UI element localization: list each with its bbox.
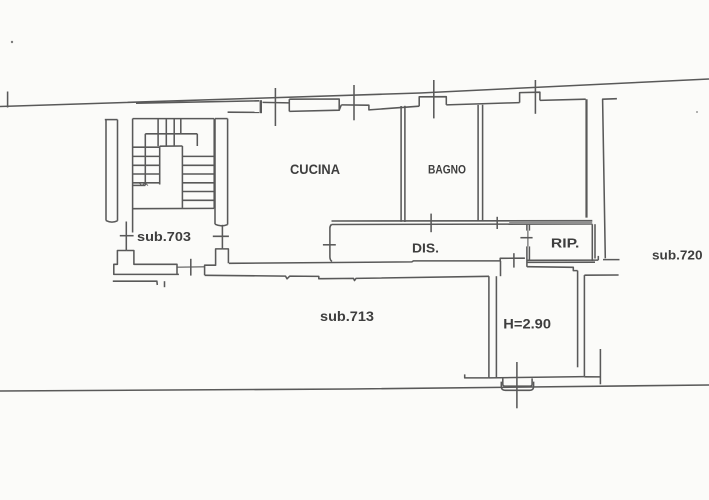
svg-text:H=2.90: H=2.90 [503, 317, 551, 332]
svg-text:sub.720: sub.720 [652, 248, 703, 263]
svg-text:DIS.: DIS. [412, 241, 439, 256]
svg-text:BAGNO: BAGNO [428, 163, 466, 177]
svg-text:sub.703: sub.703 [137, 229, 191, 244]
svg-text:RIP.: RIP. [551, 236, 580, 251]
svg-text:sub.713: sub.713 [320, 309, 375, 324]
svg-text:CUCINA: CUCINA [290, 162, 340, 177]
